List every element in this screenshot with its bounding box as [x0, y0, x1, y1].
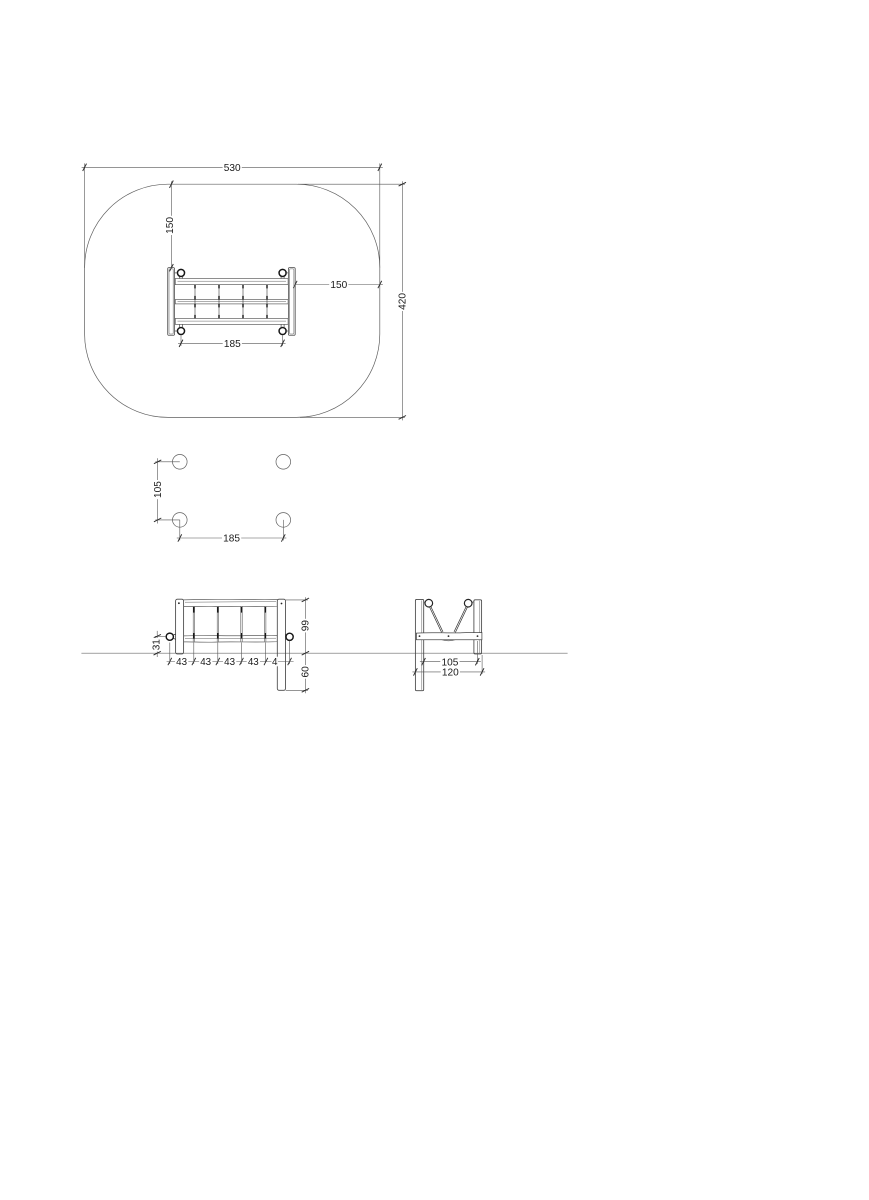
- svg-text:43: 43: [176, 657, 187, 668]
- svg-text:99: 99: [300, 620, 311, 632]
- svg-text:150: 150: [330, 280, 347, 291]
- svg-text:43: 43: [200, 657, 211, 668]
- svg-text:420: 420: [398, 293, 409, 310]
- svg-text:43: 43: [224, 657, 235, 668]
- svg-text:105: 105: [153, 481, 164, 498]
- svg-text:185: 185: [223, 534, 240, 545]
- svg-text:60: 60: [300, 666, 311, 678]
- svg-text:120: 120: [442, 668, 459, 679]
- svg-text:530: 530: [224, 163, 241, 174]
- svg-text:185: 185: [224, 339, 241, 350]
- svg-text:4: 4: [272, 657, 278, 668]
- svg-text:150: 150: [165, 217, 176, 234]
- svg-text:31: 31: [151, 639, 162, 651]
- svg-text:43: 43: [248, 657, 259, 668]
